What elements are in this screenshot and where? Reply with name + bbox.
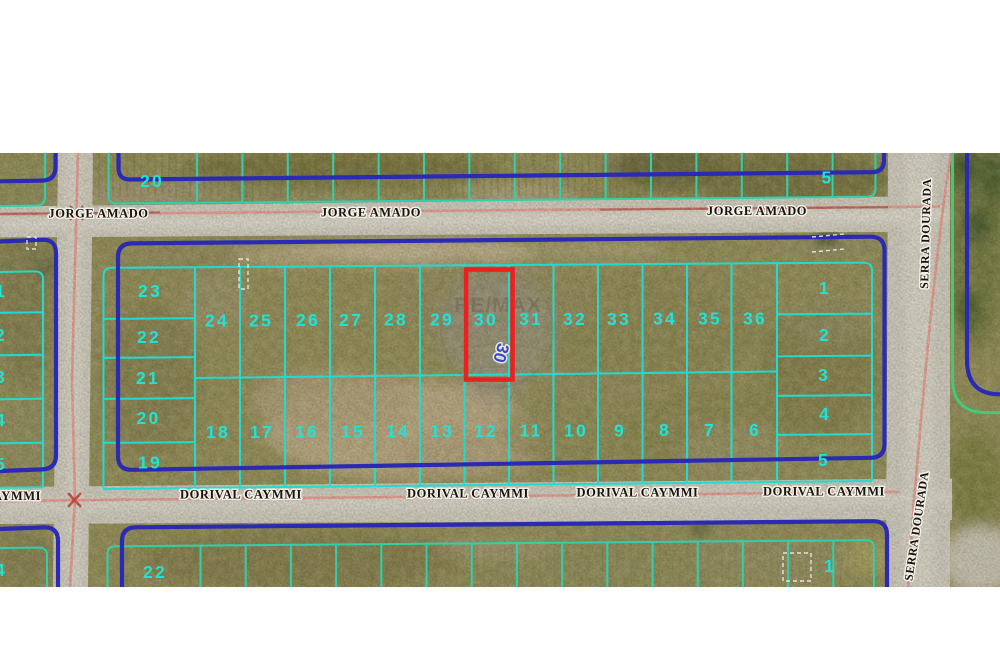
svg-text:1: 1 bbox=[824, 556, 836, 576]
svg-text:6: 6 bbox=[749, 420, 761, 440]
svg-text:JORGE AMADO: JORGE AMADO bbox=[48, 207, 148, 221]
svg-text:JORGE AMADO: JORGE AMADO bbox=[707, 204, 807, 218]
svg-text:29: 29 bbox=[430, 310, 454, 330]
svg-text:5: 5 bbox=[818, 450, 830, 470]
svg-text:4: 4 bbox=[819, 404, 831, 424]
svg-text:JORGE AMADO: JORGE AMADO bbox=[321, 206, 421, 220]
svg-text:24: 24 bbox=[205, 310, 229, 330]
svg-text:22: 22 bbox=[143, 562, 167, 582]
svg-text:5: 5 bbox=[0, 454, 7, 474]
svg-text:19: 19 bbox=[138, 453, 162, 473]
svg-text:2: 2 bbox=[819, 325, 831, 345]
svg-text:13: 13 bbox=[430, 421, 454, 441]
svg-text:36: 36 bbox=[743, 308, 767, 328]
svg-text:DORIVAL CAYMMI: DORIVAL CAYMMI bbox=[763, 485, 885, 499]
svg-text:2: 2 bbox=[0, 325, 7, 345]
svg-text:30: 30 bbox=[474, 309, 498, 329]
svg-text:20: 20 bbox=[136, 408, 160, 428]
svg-text:27: 27 bbox=[339, 310, 363, 330]
svg-text:21: 21 bbox=[136, 368, 160, 388]
svg-text:32: 32 bbox=[563, 309, 587, 329]
svg-text:SERRA DOURADA: SERRA DOURADA bbox=[917, 178, 934, 289]
svg-text:9: 9 bbox=[614, 420, 626, 440]
svg-text:10: 10 bbox=[564, 420, 588, 440]
svg-text:11: 11 bbox=[519, 421, 542, 441]
svg-text:1: 1 bbox=[819, 278, 831, 298]
svg-text:20: 20 bbox=[140, 171, 164, 191]
svg-text:8: 8 bbox=[659, 420, 671, 440]
svg-text:28: 28 bbox=[384, 310, 408, 330]
svg-text:35: 35 bbox=[698, 308, 722, 328]
svg-text:3: 3 bbox=[0, 367, 7, 387]
svg-text:31: 31 bbox=[519, 309, 543, 329]
svg-text:22: 22 bbox=[137, 327, 161, 347]
svg-text:DORIVAL CAYMMI: DORIVAL CAYMMI bbox=[180, 488, 302, 502]
svg-text:25: 25 bbox=[249, 310, 273, 330]
svg-text:7: 7 bbox=[704, 420, 716, 440]
svg-text:26: 26 bbox=[296, 310, 320, 330]
svg-text:12: 12 bbox=[474, 421, 498, 441]
svg-text:23: 23 bbox=[138, 281, 162, 301]
svg-text:DORIVAL CAYMMI: DORIVAL CAYMMI bbox=[0, 489, 41, 503]
svg-text:5: 5 bbox=[821, 168, 833, 188]
svg-text:3: 3 bbox=[818, 365, 830, 385]
svg-text:16: 16 bbox=[295, 422, 319, 442]
svg-text:4: 4 bbox=[0, 410, 7, 430]
svg-text:DORIVAL CAYMMI: DORIVAL CAYMMI bbox=[577, 486, 699, 500]
svg-text:17: 17 bbox=[250, 422, 274, 442]
svg-text:4: 4 bbox=[0, 560, 7, 580]
svg-text:14: 14 bbox=[386, 421, 410, 441]
svg-text:18: 18 bbox=[206, 422, 230, 442]
svg-text:33: 33 bbox=[607, 309, 631, 329]
svg-text:1: 1 bbox=[0, 281, 7, 301]
svg-text:DORIVAL CAYMMI: DORIVAL CAYMMI bbox=[407, 487, 529, 501]
svg-text:34: 34 bbox=[653, 309, 677, 329]
svg-text:15: 15 bbox=[341, 421, 365, 441]
